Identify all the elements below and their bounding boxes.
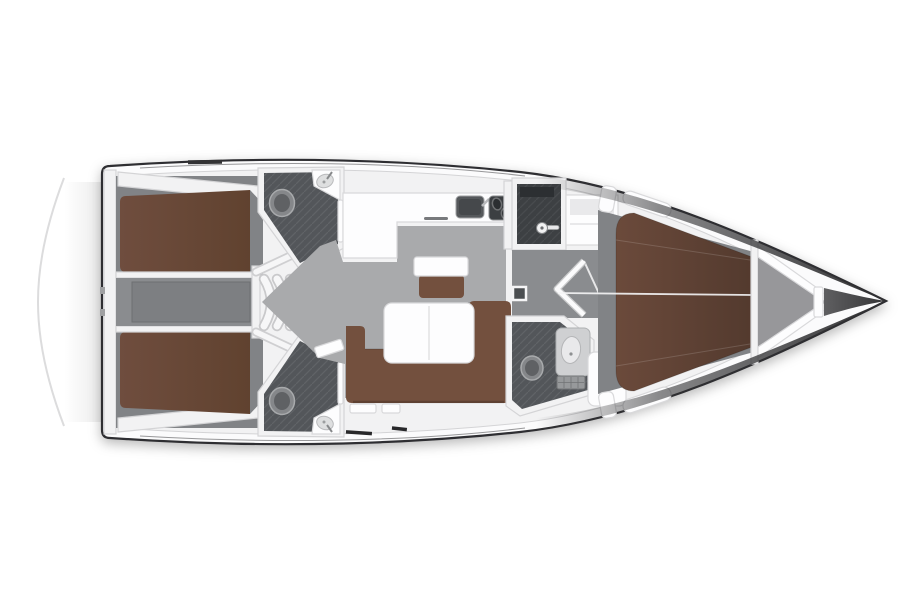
mast-post-marker (513, 287, 526, 300)
toilet-bowl (274, 392, 290, 410)
corridor-wall-top (116, 272, 258, 278)
head-door (338, 200, 343, 242)
chart-table (414, 257, 468, 276)
transom-notch-lower (100, 309, 105, 316)
toilet-bowl (525, 360, 539, 376)
swim-platform-shade (64, 182, 104, 422)
anchor-locker-bar (814, 287, 823, 317)
transom-notch-upper (100, 287, 105, 294)
shower-grate (557, 376, 585, 389)
transom-band (104, 170, 116, 434)
aft-cabin-starboard-berth (120, 332, 250, 414)
galley-handrail (424, 217, 448, 220)
yacht-floor-plan (0, 0, 900, 600)
toilet-bowl (274, 194, 290, 212)
aft-cabin-port-berth (120, 190, 250, 272)
hull-window (188, 160, 222, 165)
companionway-wall (252, 266, 260, 338)
forward-bulkhead (751, 240, 758, 364)
aft-cabin-starboard (116, 328, 263, 432)
nav-stool (419, 275, 464, 298)
washbasin-drain (569, 352, 572, 355)
sink-drain (323, 421, 326, 424)
engine-hatch (132, 282, 250, 322)
sink-drain (323, 181, 326, 184)
aft-cabin-port (116, 172, 263, 276)
under-sofa-locker (382, 404, 400, 413)
under-sofa-locker (350, 404, 376, 413)
floor-plan-canvas (0, 0, 900, 600)
nav-station (414, 257, 468, 298)
corridor-wall-bottom (116, 326, 258, 332)
shower-head-center (540, 226, 543, 229)
galley-sink-basin (459, 199, 481, 215)
engine-corridor (116, 272, 258, 332)
shower-shelf (520, 187, 554, 197)
head-door (338, 362, 343, 404)
